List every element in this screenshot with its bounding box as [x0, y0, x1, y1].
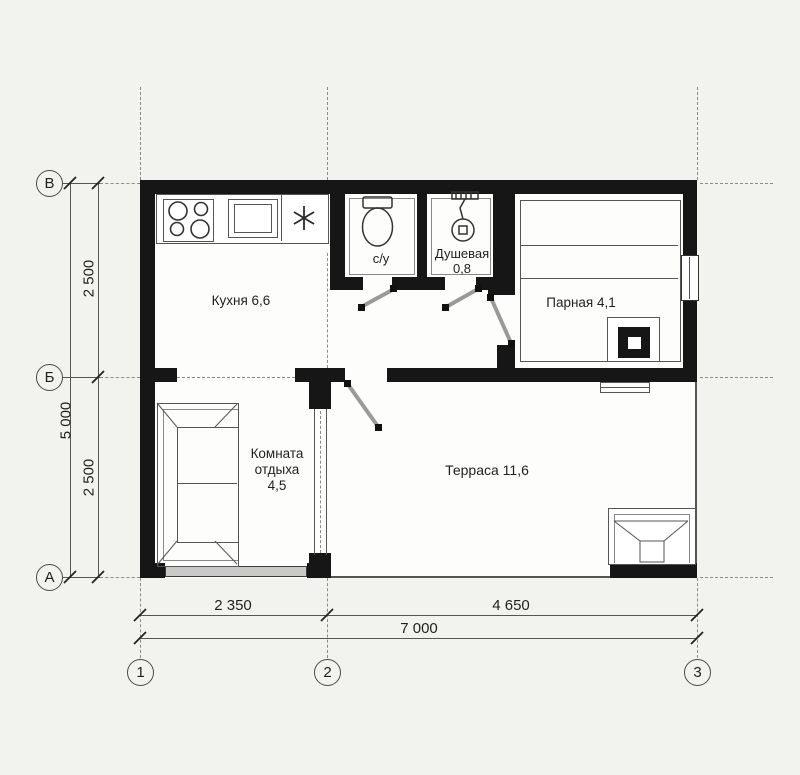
grid-line-Б-row-right	[700, 377, 773, 378]
leader-row-B	[63, 183, 100, 184]
lounge-label-line2: отдыха	[217, 462, 337, 478]
steam-bench-edge-2	[521, 278, 678, 279]
grid-bubble-col-3: 3	[684, 659, 711, 686]
wall-shower-south-left	[427, 277, 445, 290]
grid-line-1-top	[140, 87, 141, 180]
wall-Б-left-stub	[155, 368, 177, 382]
shower-label: Душевая 0,8	[412, 246, 512, 276]
window-lounge-south	[165, 566, 307, 577]
wall-wc-south-left	[345, 277, 363, 290]
dim-left-inner-top-label: 2 500	[81, 249, 98, 309]
grid-line-3-bottom	[697, 578, 698, 658]
grid-bubble-col-2: 2	[314, 659, 341, 686]
grid-line-1-bottom	[140, 578, 141, 658]
dim-left-outer-label: 5 000	[58, 391, 75, 451]
grid-line-3-top	[697, 87, 698, 180]
grid-line-B-row-right	[700, 183, 773, 184]
grid-bubble-row-А: А	[36, 564, 63, 591]
terrace-chair-inner	[614, 514, 690, 563]
dim-left-inner-bottom-label: 2 500	[81, 448, 98, 508]
sink-inner	[234, 204, 272, 233]
wall-top	[140, 180, 697, 194]
leader-row-Б	[63, 377, 100, 378]
window-steam-east	[681, 255, 699, 301]
dim-line-left-outer	[70, 183, 71, 577]
shower-label-area: 0,8	[412, 261, 512, 276]
dim-bottom-inner-right-label: 4 650	[481, 597, 541, 614]
dim-bottom-inner-left-label: 2 350	[203, 597, 263, 614]
floor-plan: Кухня 6,6 с/у Душевая 0,8 Парная 4,1 Ком…	[0, 0, 800, 775]
leader-row-А	[63, 577, 100, 578]
kitchen-label: Кухня 6,6	[181, 293, 301, 309]
partition-bottom-stub	[309, 553, 331, 565]
wall-kitchen-wc	[330, 194, 345, 290]
wall-left	[140, 180, 155, 578]
dim-bottom-outer-label: 7 000	[389, 620, 449, 637]
grid-line-2-top	[327, 87, 328, 180]
grid-line-А-row-right	[700, 577, 773, 578]
stove-firebox-step-line	[601, 387, 649, 388]
grid-bubble-row-В: В	[36, 170, 63, 197]
wall-bottom-mid-stub	[307, 563, 331, 578]
wall-Б-right	[387, 368, 697, 382]
terrace-label: Терраса 11,6	[417, 462, 557, 478]
wall-shower-steam	[493, 194, 515, 295]
kitchen-counter-divider	[281, 195, 282, 241]
grid-line-2-interior	[327, 253, 328, 368]
lounge-label-line1: Комната	[217, 446, 337, 462]
grid-line-Б-row-left	[100, 377, 140, 378]
stove-outline	[163, 199, 214, 242]
dim-line-left-inner	[98, 183, 99, 577]
grid-line-2-bottom	[327, 578, 328, 658]
partition-top-stub	[309, 382, 331, 409]
lounge-label: Комната отдыха 4,5	[217, 446, 337, 494]
grid-line-B-row-left	[100, 183, 140, 184]
dim-line-bottom-inner	[140, 615, 697, 616]
grid-bubble-row-Б: Б	[36, 364, 63, 391]
window-steam-east-mullion	[689, 257, 690, 299]
wall-Б-T-block	[295, 368, 345, 382]
steam-label: Парная 4,1	[521, 295, 641, 311]
grid-line-Б-row-interior	[177, 377, 295, 378]
grid-line-А-row-left	[100, 577, 140, 578]
steam-bench-edge-1	[521, 245, 678, 246]
wall-wc-south-right	[392, 277, 418, 290]
sauna-stove-core	[628, 337, 641, 349]
shower-label-name: Душевая	[412, 246, 512, 261]
wall-steam-door-top-block	[488, 283, 515, 295]
dim-line-bottom-outer	[140, 638, 697, 639]
lounge-label-area: 4,5	[217, 478, 337, 494]
wall-bottom-right	[610, 563, 697, 578]
wall-steam-door-bottom-block	[497, 345, 515, 368]
grid-bubble-col-1: 1	[127, 659, 154, 686]
wc-label: с/у	[351, 251, 411, 267]
